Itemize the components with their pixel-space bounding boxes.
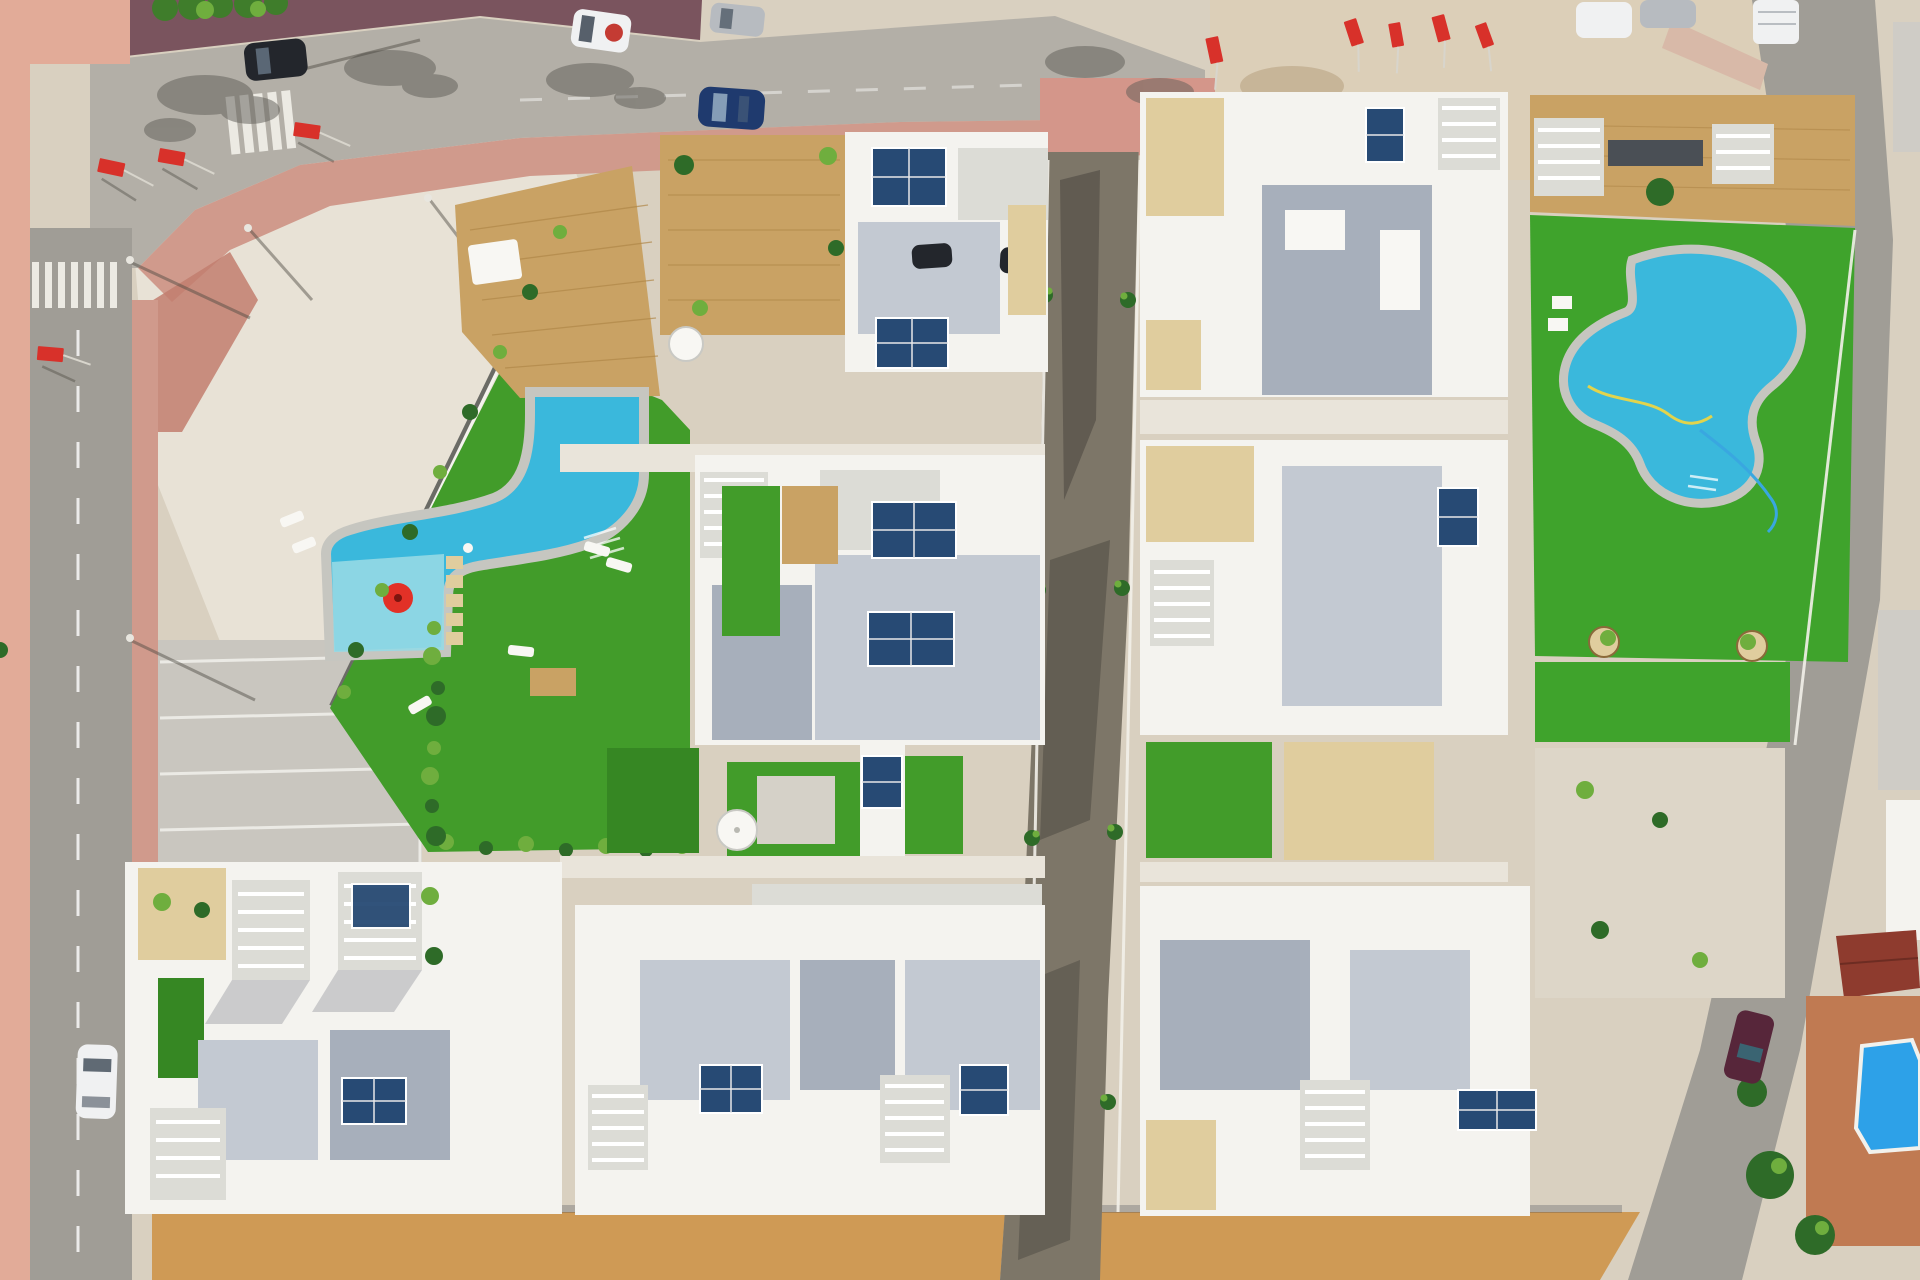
villaR3-tile-patio — [1146, 1120, 1216, 1210]
villaL-tile-patio — [138, 868, 226, 960]
deck-tree — [1646, 178, 1674, 206]
villaR-garden-lawn — [1146, 742, 1272, 858]
villaR3-terrace-dark — [1160, 940, 1310, 1090]
aerial-photo — [0, 0, 1920, 1280]
walkway-R1 — [1140, 400, 1508, 434]
right-villas — [1140, 92, 1536, 1216]
right-lawn-lower — [1535, 662, 1790, 742]
planter-plant — [1740, 634, 1756, 650]
villaR2-tile-patio — [1146, 446, 1254, 542]
old-building-1 — [1878, 610, 1920, 790]
right-gravel-patio — [1535, 748, 1785, 998]
pool-starfish — [463, 543, 473, 553]
patio-tree — [153, 893, 171, 911]
lawn-pad — [1548, 318, 1568, 331]
villaC1-solar — [700, 1065, 762, 1113]
villaL-garden — [158, 978, 204, 1078]
white-car-top-road — [570, 8, 633, 54]
dark-car-top-road — [243, 38, 309, 82]
walkway-R2 — [1140, 862, 1508, 882]
walkway-2 — [560, 856, 1045, 878]
parasol-center — [734, 827, 740, 833]
villaR3-terrace — [1350, 950, 1470, 1090]
villaB-deck-strip — [782, 486, 838, 564]
garden-villa-solar — [862, 756, 902, 808]
dirt-strip-right — [1098, 1212, 1640, 1280]
villaR2-terrace — [1282, 466, 1442, 706]
white-car-left-road — [75, 1044, 118, 1119]
villaA-tile-patio — [1008, 205, 1046, 315]
aerial-photo-stage — [0, 0, 1920, 1280]
villaR3-solar — [1458, 1090, 1536, 1130]
planter-plant — [1600, 630, 1616, 646]
deck-table — [467, 239, 522, 286]
villaR2-solar — [1438, 488, 1478, 546]
villaR-garden-tiles — [1284, 742, 1434, 860]
villaA-carport-car — [911, 243, 953, 270]
lawn-pad — [1552, 296, 1572, 309]
old-building-top — [1893, 22, 1920, 152]
villaB-garden-strip — [722, 486, 780, 636]
villaC2-solar — [960, 1065, 1008, 1115]
patio-tree — [194, 902, 210, 918]
garden-patio — [757, 776, 835, 844]
white-parasol — [669, 327, 703, 361]
garden-lawn-3 — [905, 756, 963, 854]
villaC-north-pergola — [752, 884, 1042, 906]
outdoor-kitchen — [1608, 140, 1703, 166]
villaR1-structure-2 — [1380, 230, 1420, 310]
old-town-pool — [1856, 1040, 1920, 1152]
red-parasol-center — [394, 594, 402, 602]
salmon-corner — [30, 0, 130, 64]
villaR1-tile-patio-2 — [1146, 320, 1201, 390]
silver-car-top-road — [709, 2, 766, 37]
villaR1-structure — [1285, 210, 1345, 250]
villaR1-solar — [1366, 108, 1404, 162]
dirt-strip-left — [152, 1212, 1005, 1280]
old-building-2 — [1886, 800, 1920, 940]
timber-platform — [530, 668, 576, 696]
villaR1-tile-patio — [1146, 98, 1224, 216]
blue-car-top-road — [697, 86, 766, 131]
garden-lawn-1 — [607, 748, 699, 853]
salmon-sidewalk-left — [0, 0, 30, 1280]
villaC2-terrace-dark — [800, 960, 895, 1090]
